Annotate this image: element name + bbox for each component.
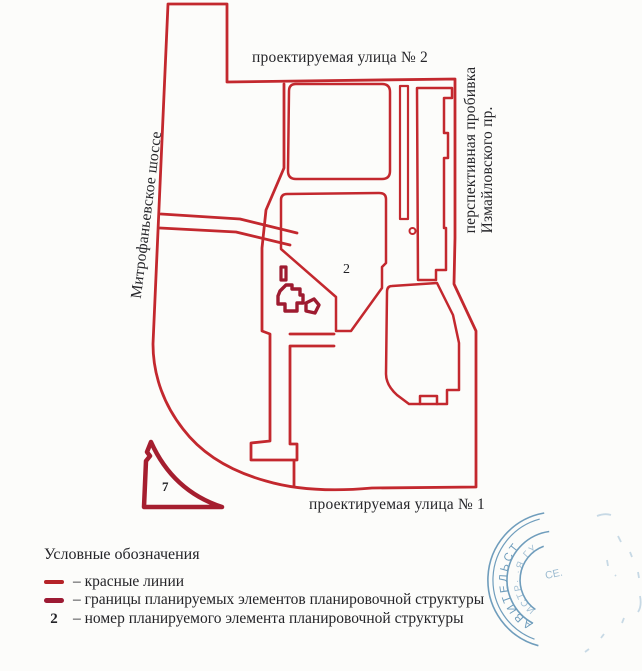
dark-red-line-swatch-icon <box>44 598 64 603</box>
block-outline-top-central <box>288 84 390 179</box>
planned-element-number-2: 2 <box>343 262 350 278</box>
road-label-izmailovsky-line1: перспективная пробивка <box>462 67 479 234</box>
block-outline-right <box>386 283 459 404</box>
outer-boundary-red-line <box>153 4 476 490</box>
planned-element-number-7: 7 <box>162 479 169 495</box>
block-outline-tall-right <box>417 88 452 280</box>
legend-label-red-lines: – красные линии <box>73 573 184 591</box>
legend-label-element-number: – номер планируемого элемента планировоч… <box>73 610 464 628</box>
legend-row-boundaries: – границы планируемых элементов планиров… <box>44 591 484 609</box>
building-footprint-pentagon <box>306 299 319 313</box>
inner-street-vertical <box>251 84 334 460</box>
street-label-top: проектируемая улица № 2 <box>252 49 428 67</box>
legend-label-boundaries: – границы планируемых элементов планиров… <box>73 591 484 609</box>
red-line-swatch-icon <box>44 580 64 585</box>
official-stamp: АВИТЕЛЬСТ ИСТР· ·Я ГУ СЕ. <box>488 513 641 652</box>
legend-row-red-lines: – красные линии <box>44 573 184 591</box>
legend-title: Условные обозначения <box>44 546 200 564</box>
stamp-faded-marks <box>585 514 641 652</box>
legend-number-symbol: 2 <box>44 611 64 628</box>
planned-element-7-boundary <box>144 442 222 507</box>
small-ring-mark <box>410 228 416 234</box>
stamp-center-text: СЕ. <box>544 567 564 582</box>
road-label-izmailovsky-line2: Измайловского пр. <box>479 67 496 234</box>
plan-scan-page: АВИТЕЛЬСТ ИСТР· ·Я ГУ СЕ. проектируемая … <box>0 0 642 671</box>
street-label-bottom: проектируемая улица № 1 <box>309 496 485 514</box>
street-lower-line <box>160 228 290 245</box>
road-label-izmailovsky: перспективная пробивка Измайловского пр. <box>462 67 496 234</box>
legend-row-element-number: 2 – номер планируемого элемента планиров… <box>44 610 464 628</box>
narrow-strip-outline <box>400 86 408 219</box>
building-footprint-small <box>281 267 286 280</box>
plan-map-svg: АВИТЕЛЬСТ ИСТР· ·Я ГУ СЕ. <box>0 0 642 671</box>
building-footprint-cross <box>278 285 303 311</box>
